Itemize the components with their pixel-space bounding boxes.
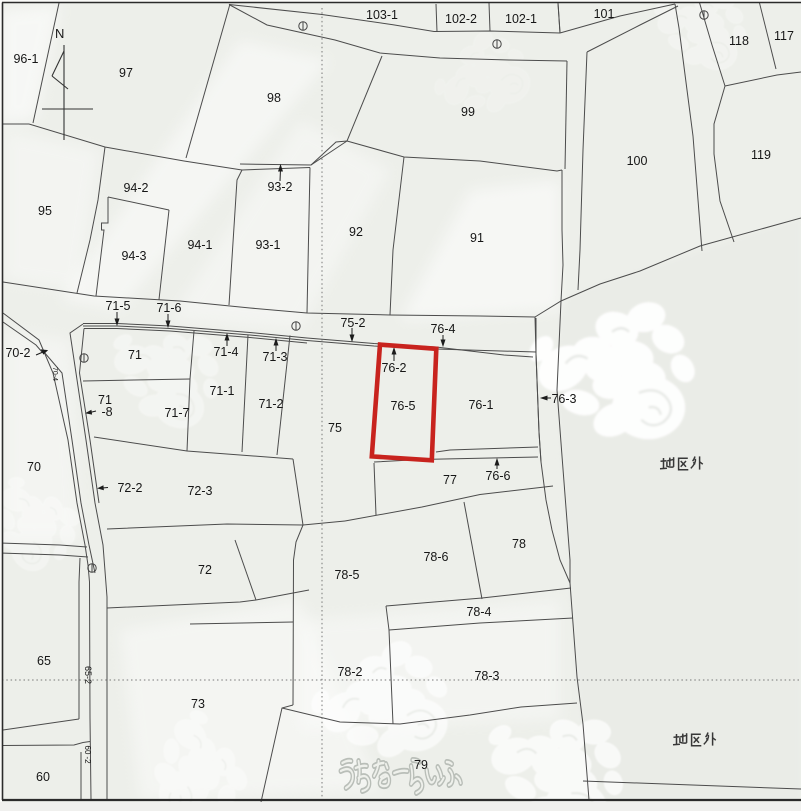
svg-text:99: 99	[461, 105, 475, 119]
svg-text:71-1: 71-1	[209, 384, 234, 398]
svg-text:76-5: 76-5	[390, 399, 415, 413]
svg-text:93-2: 93-2	[267, 180, 292, 194]
svg-text:78-5: 78-5	[334, 568, 359, 582]
svg-text:65-2: 65-2	[83, 666, 93, 684]
svg-text:103-1: 103-1	[366, 8, 398, 22]
svg-text:60: 60	[36, 770, 50, 784]
svg-text:71-2: 71-2	[258, 397, 283, 411]
svg-text:71: 71	[128, 348, 142, 362]
svg-text:78-4: 78-4	[466, 605, 491, 619]
svg-text:76-2: 76-2	[381, 361, 406, 375]
svg-text:-8: -8	[101, 405, 112, 419]
svg-text:94-1: 94-1	[187, 238, 212, 252]
svg-text:78-6: 78-6	[423, 550, 448, 564]
svg-text:76-6: 76-6	[485, 469, 510, 483]
svg-text:N: N	[55, 26, 64, 41]
svg-text:73: 73	[191, 697, 205, 711]
svg-text:71-4: 71-4	[213, 345, 238, 359]
svg-text:94-3: 94-3	[121, 249, 146, 263]
svg-text:117: 117	[774, 29, 794, 43]
svg-text:71-5: 71-5	[105, 299, 130, 313]
svg-text:-2: -2	[83, 756, 92, 764]
svg-text:118: 118	[729, 34, 749, 48]
svg-text:98: 98	[267, 91, 281, 105]
svg-text:70-2: 70-2	[5, 346, 30, 360]
svg-text:75-2: 75-2	[340, 316, 365, 330]
svg-text:72-3: 72-3	[187, 484, 212, 498]
svg-text:78-2: 78-2	[337, 665, 362, 679]
svg-text:101: 101	[594, 7, 615, 21]
svg-text:72-2: 72-2	[117, 481, 142, 495]
svg-text:77: 77	[443, 473, 457, 487]
svg-text:78: 78	[512, 537, 526, 551]
svg-text:71-6: 71-6	[156, 301, 181, 315]
svg-text:119: 119	[751, 148, 771, 162]
svg-text:95: 95	[38, 204, 52, 218]
svg-text:76-3: 76-3	[551, 392, 576, 406]
svg-text:100: 100	[627, 154, 648, 168]
svg-text:70-4: 70-4	[51, 367, 58, 381]
svg-text:65: 65	[37, 654, 51, 668]
svg-text:76-4: 76-4	[430, 322, 455, 336]
svg-text:60: 60	[83, 746, 92, 755]
svg-text:94-2: 94-2	[123, 181, 148, 195]
svg-text:91: 91	[470, 231, 484, 245]
svg-text:102-1: 102-1	[505, 12, 537, 26]
svg-text:97: 97	[119, 66, 133, 80]
svg-text:96-1: 96-1	[13, 52, 38, 66]
svg-text:76-1: 76-1	[468, 398, 493, 412]
svg-text:102-2: 102-2	[445, 12, 477, 26]
svg-text:71-7: 71-7	[164, 406, 189, 420]
svg-text:72: 72	[198, 563, 212, 577]
svg-text:79: 79	[414, 758, 428, 772]
svg-text:93-1: 93-1	[255, 238, 280, 252]
svg-text:78-3: 78-3	[474, 669, 499, 683]
svg-text:75: 75	[328, 421, 342, 435]
svg-text:92: 92	[349, 225, 363, 239]
svg-text:70: 70	[27, 460, 41, 474]
svg-text:71-3: 71-3	[262, 350, 287, 364]
